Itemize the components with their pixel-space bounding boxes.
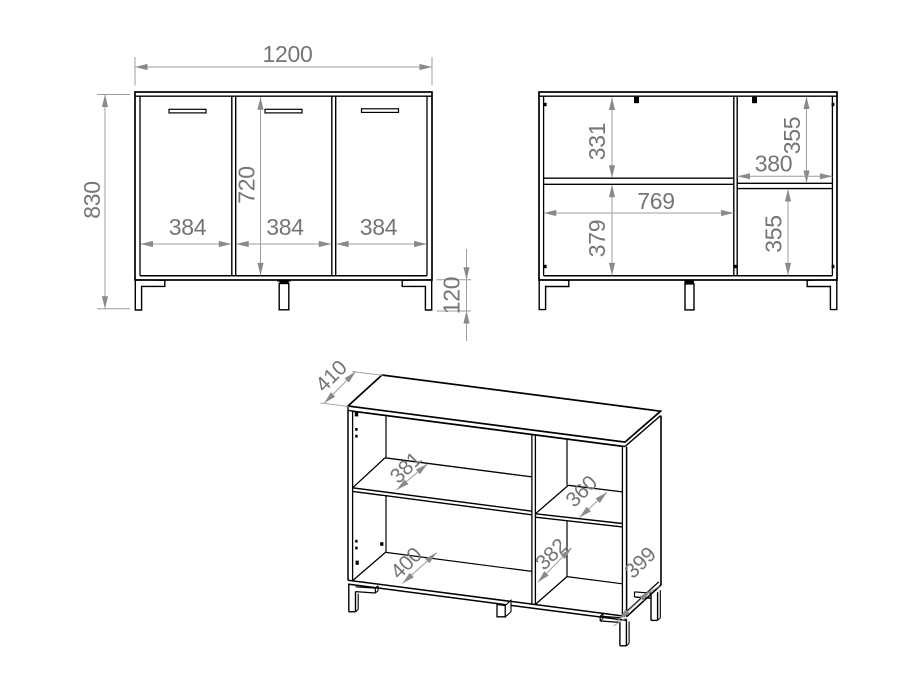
svg-text:380: 380 bbox=[755, 151, 792, 177]
svg-text:1200: 1200 bbox=[263, 41, 313, 67]
svg-text:384: 384 bbox=[266, 214, 304, 240]
svg-text:120: 120 bbox=[439, 277, 465, 314]
svg-text:384: 384 bbox=[360, 214, 398, 240]
svg-text:384: 384 bbox=[169, 214, 207, 240]
svg-text:830: 830 bbox=[79, 181, 105, 218]
svg-text:720: 720 bbox=[234, 166, 260, 203]
svg-text:331: 331 bbox=[584, 123, 610, 160]
svg-text:355: 355 bbox=[761, 215, 787, 252]
svg-text:379: 379 bbox=[584, 220, 610, 257]
svg-text:355: 355 bbox=[779, 117, 805, 154]
svg-text:769: 769 bbox=[637, 188, 674, 214]
